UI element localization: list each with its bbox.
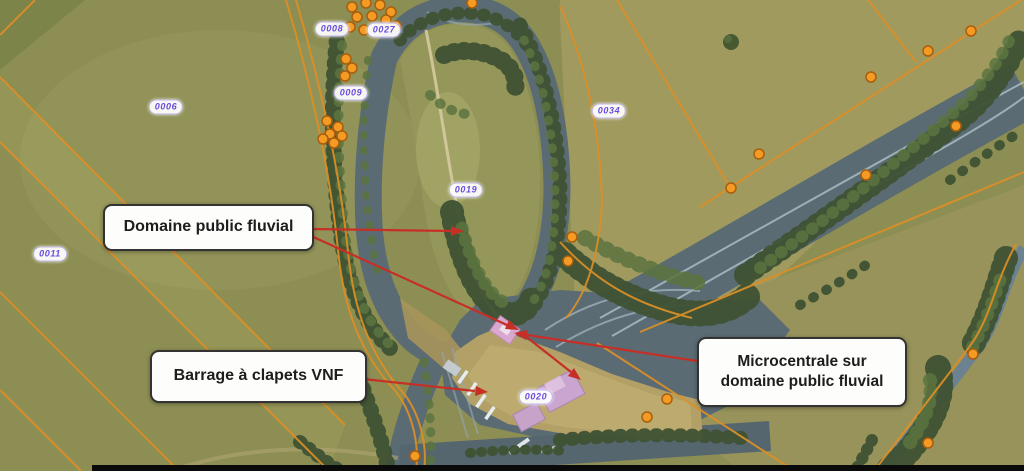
parcel-label-0020[interactable]: 0020 [519,390,553,405]
parcel-label-0019[interactable]: 0019 [449,183,483,198]
callout-domaine-public-fluvial: Domaine public fluvial [103,204,314,251]
callout-microcentrale-line1: Microcentrale sur [737,352,866,372]
callout-microcentrale-line2: domaine public fluvial [721,372,884,392]
parcel-label-0009[interactable]: 0009 [334,86,368,101]
callout-microcentrale: Microcentrale sur domaine public fluvial [697,337,907,407]
callout-barrage-text: Barrage à clapets VNF [174,366,344,387]
bottom-border-bar [92,465,1024,471]
map-canvas: 0008 0027 0009 0006 0034 0019 0011 0020 … [0,0,1024,471]
parcel-label-0008[interactable]: 0008 [315,22,349,37]
parcel-label-0006[interactable]: 0006 [149,100,183,115]
parcel-label-0034[interactable]: 0034 [592,104,626,119]
parcel-label-0027[interactable]: 0027 [367,23,401,38]
parcel-label-0011[interactable]: 0011 [33,247,67,262]
callout-barrage-clapets-vnf: Barrage à clapets VNF [150,350,367,403]
callout-domaine-text: Domaine public fluvial [124,217,294,238]
